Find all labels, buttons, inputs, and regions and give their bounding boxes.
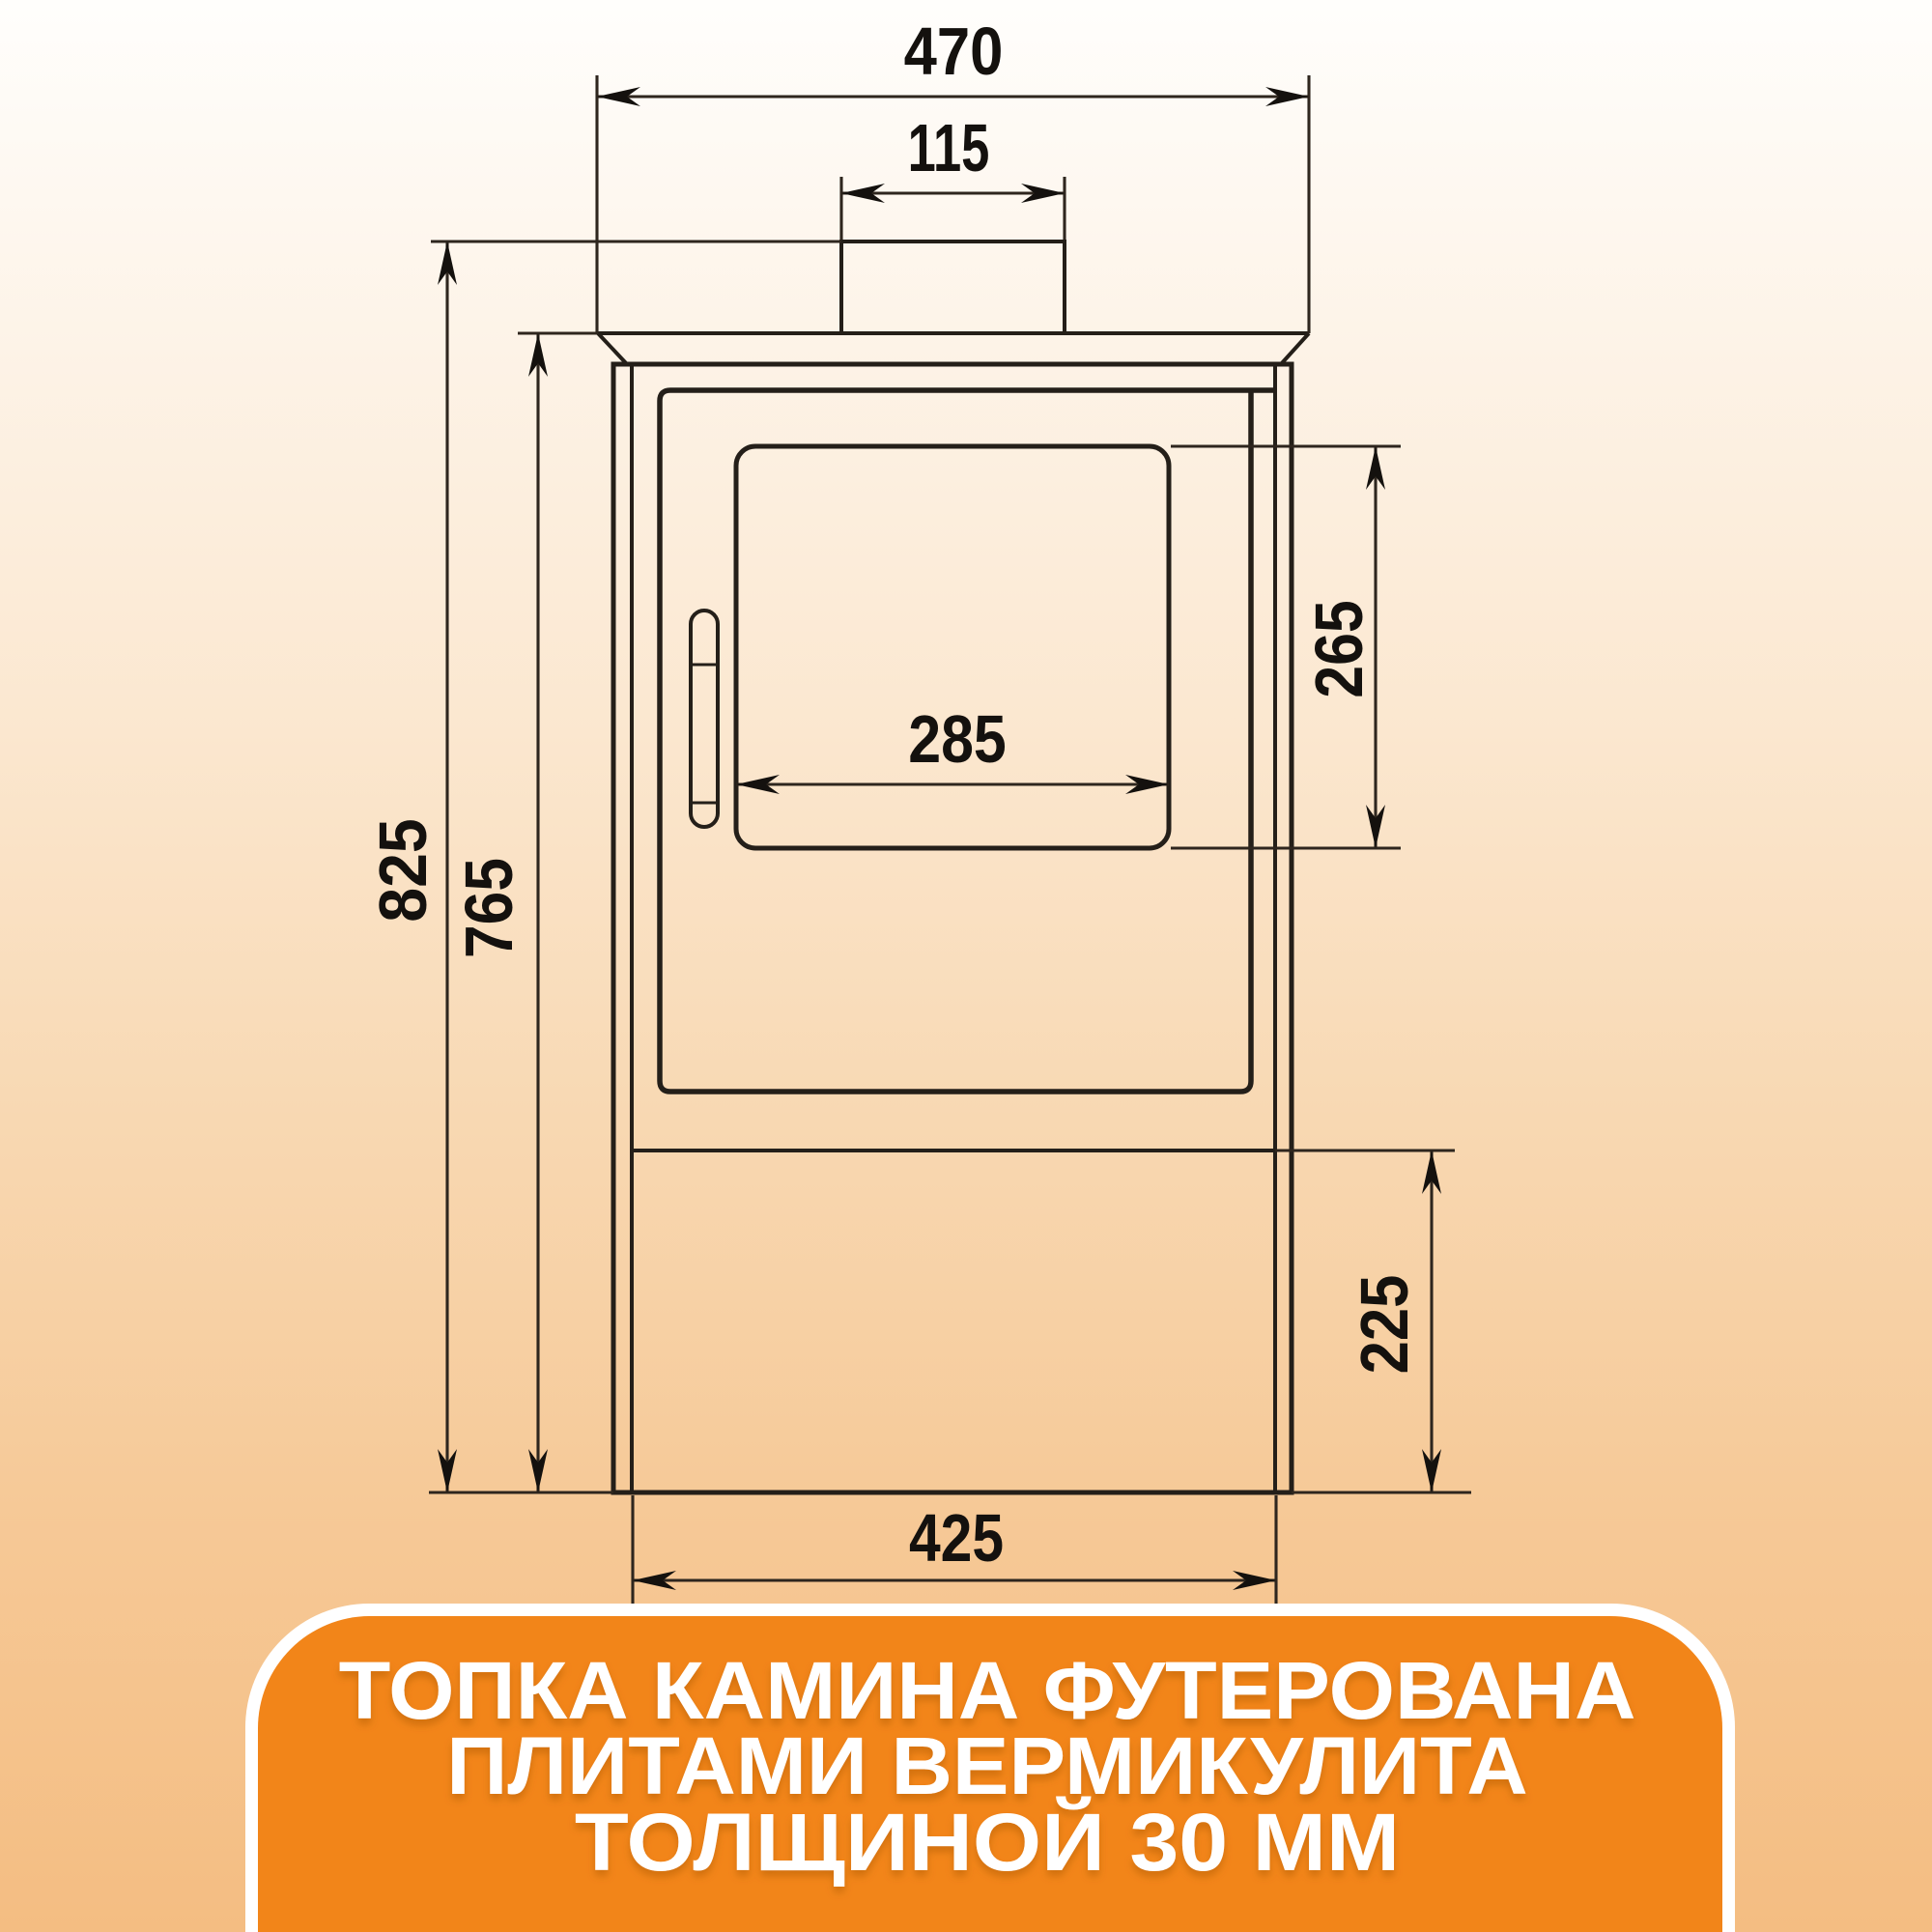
svg-text:470: 470: [904, 13, 1004, 89]
svg-text:115: 115: [908, 111, 990, 186]
svg-text:285: 285: [908, 701, 1007, 777]
svg-text:ТОЛЩИНОЙ 30 ММ: ТОЛЩИНОЙ 30 ММ: [575, 1797, 1400, 1889]
svg-text:265: 265: [1301, 600, 1377, 698]
svg-text:225: 225: [1346, 1275, 1422, 1375]
svg-text:425: 425: [909, 1499, 1004, 1576]
svg-text:765: 765: [452, 858, 527, 958]
svg-text:825: 825: [366, 818, 441, 922]
